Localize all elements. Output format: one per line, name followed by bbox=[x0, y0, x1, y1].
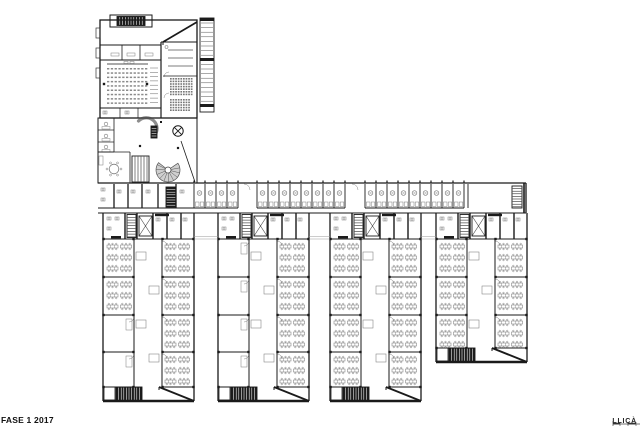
title-block: LLIÇÀ bbox=[612, 418, 637, 425]
phase-label: FASE 1 2017 bbox=[1, 415, 54, 425]
floorplan-sheet: FASE 1 2017 LLIÇÀ bbox=[0, 0, 640, 435]
scale-bar bbox=[612, 418, 640, 428]
floor-plan-drawing bbox=[0, 0, 640, 435]
